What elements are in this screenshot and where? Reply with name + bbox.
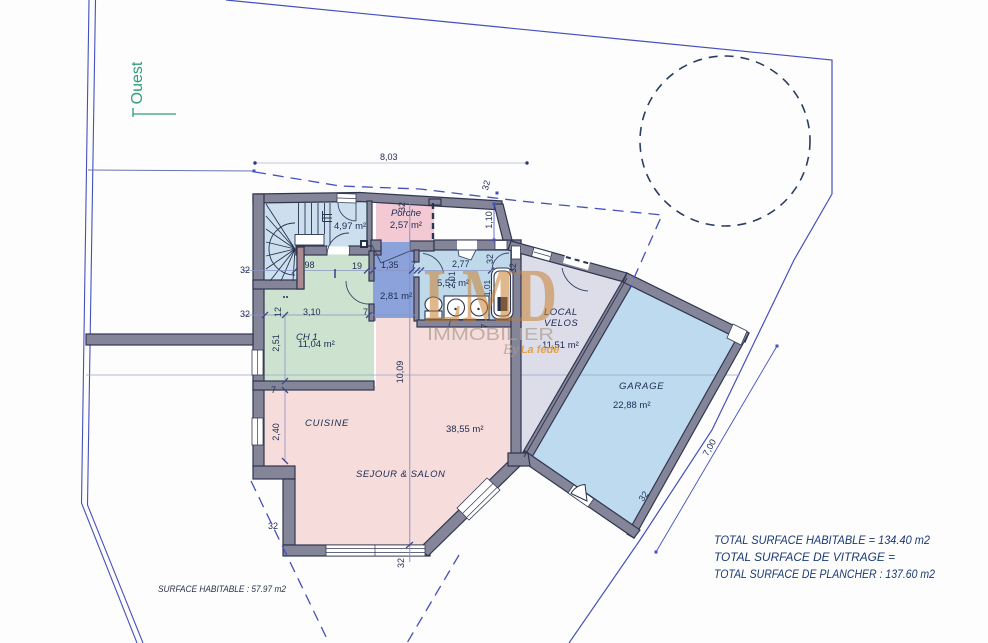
svg-text:SURFACE HABITABLE : 57.97 m2: SURFACE HABITABLE : 57.97 m2 bbox=[158, 584, 286, 594]
svg-text:10,09: 10,09 bbox=[395, 361, 405, 384]
svg-text:TOTAL SURFACE DE VITRAGE =: TOTAL SURFACE DE VITRAGE = bbox=[714, 550, 895, 564]
svg-text:38,55 m²: 38,55 m² bbox=[446, 424, 484, 435]
svg-text:1,10: 1,10 bbox=[484, 211, 494, 229]
svg-text:2,40: 2,40 bbox=[271, 423, 281, 441]
svg-text:2,51: 2,51 bbox=[271, 334, 281, 352]
svg-text:19: 19 bbox=[352, 261, 362, 271]
svg-text:8,03: 8,03 bbox=[380, 152, 398, 162]
svg-text:TOTAL SURFACE HABITABLE = 134.: TOTAL SURFACE HABITABLE = 134.40 m2 bbox=[714, 533, 930, 547]
svg-text:7: 7 bbox=[411, 260, 416, 270]
svg-text:Ouest: Ouest bbox=[129, 61, 146, 104]
svg-text:32: 32 bbox=[268, 521, 278, 531]
svg-text:2,57 m²: 2,57 m² bbox=[390, 220, 422, 231]
svg-text:4,97 m²: 4,97 m² bbox=[334, 221, 366, 232]
svg-text:32: 32 bbox=[396, 558, 406, 568]
svg-text:2,81 m²: 2,81 m² bbox=[380, 291, 412, 302]
svg-text:7: 7 bbox=[363, 307, 368, 317]
svg-text:7: 7 bbox=[271, 385, 276, 395]
svg-text:GARAGE: GARAGE bbox=[619, 381, 664, 392]
svg-text:12: 12 bbox=[273, 307, 283, 317]
svg-text:1,35: 1,35 bbox=[381, 260, 399, 270]
svg-text:ByLa fédé: ByLa fédé bbox=[503, 342, 559, 358]
svg-text:32: 32 bbox=[240, 265, 250, 275]
svg-text:SEJOUR & SALON: SEJOUR & SALON bbox=[356, 469, 445, 480]
svg-text:IMMOBILIER: IMMOBILIER bbox=[427, 324, 554, 344]
svg-text:3,10: 3,10 bbox=[303, 307, 321, 317]
svg-text:32: 32 bbox=[397, 202, 407, 212]
svg-text:22,88 m²: 22,88 m² bbox=[613, 400, 651, 411]
svg-text:CUISINE: CUISINE bbox=[305, 418, 349, 429]
svg-text:TOTAL SURFACE DE PLANCHER : 13: TOTAL SURFACE DE PLANCHER : 137.60 m2 bbox=[714, 567, 935, 581]
svg-text:11,04 m²: 11,04 m² bbox=[298, 339, 335, 350]
svg-text:32: 32 bbox=[240, 309, 250, 319]
